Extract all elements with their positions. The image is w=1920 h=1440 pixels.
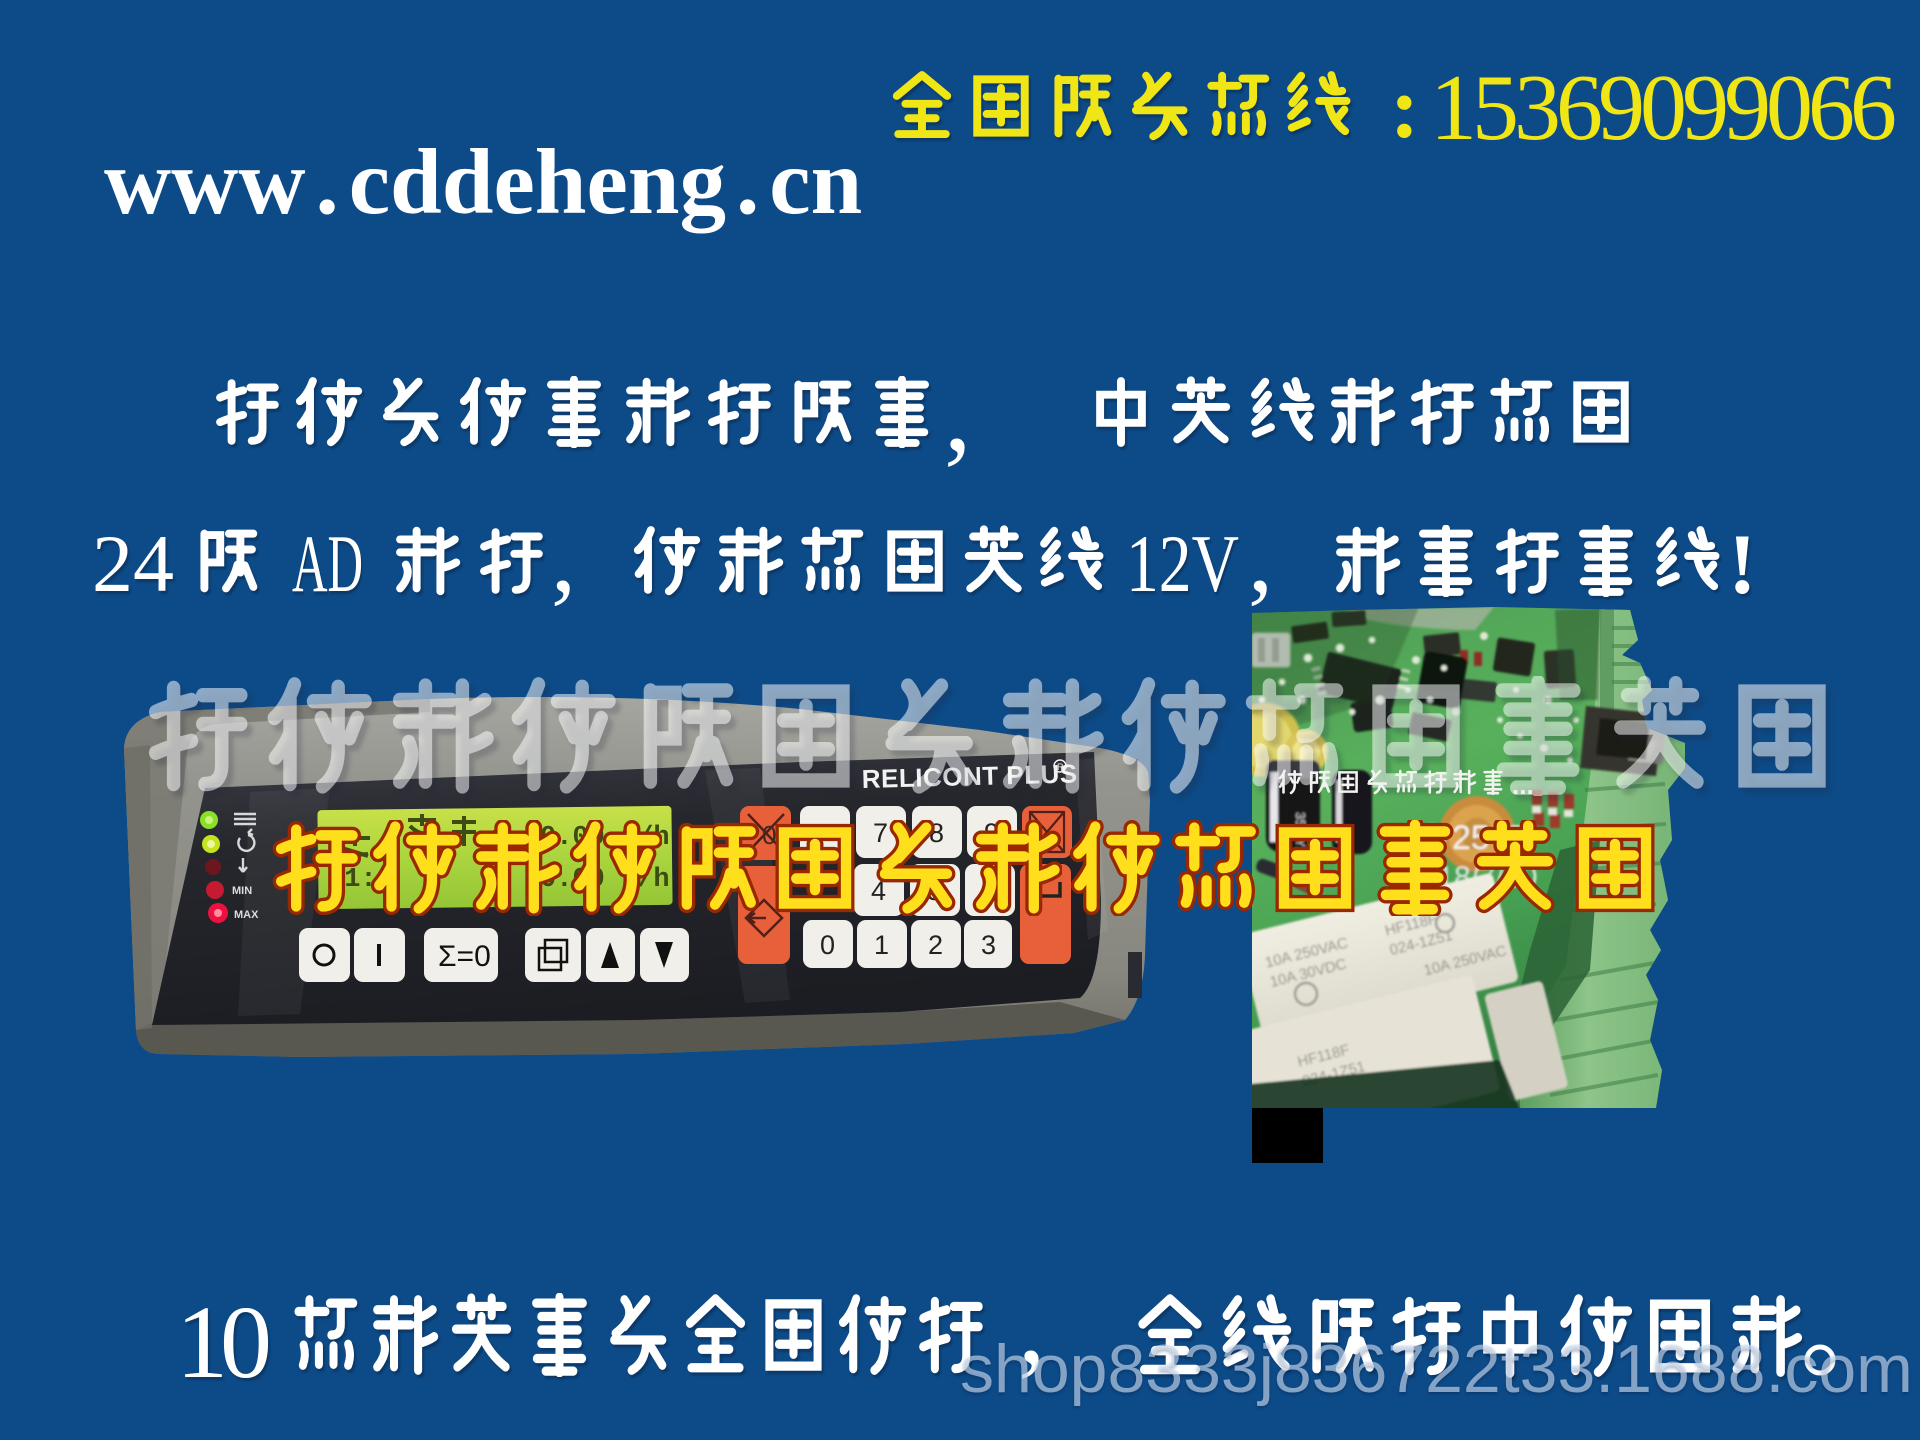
- svg-text:3: 3: [981, 930, 996, 960]
- svg-text:Σ=0: Σ=0: [438, 940, 491, 973]
- svg-text:1: 1: [874, 930, 889, 960]
- svg-text:2: 2: [928, 930, 943, 960]
- svg-text:MIN: MIN: [232, 885, 252, 897]
- svg-text:MAX: MAX: [234, 909, 259, 921]
- svg-text:0: 0: [820, 930, 835, 960]
